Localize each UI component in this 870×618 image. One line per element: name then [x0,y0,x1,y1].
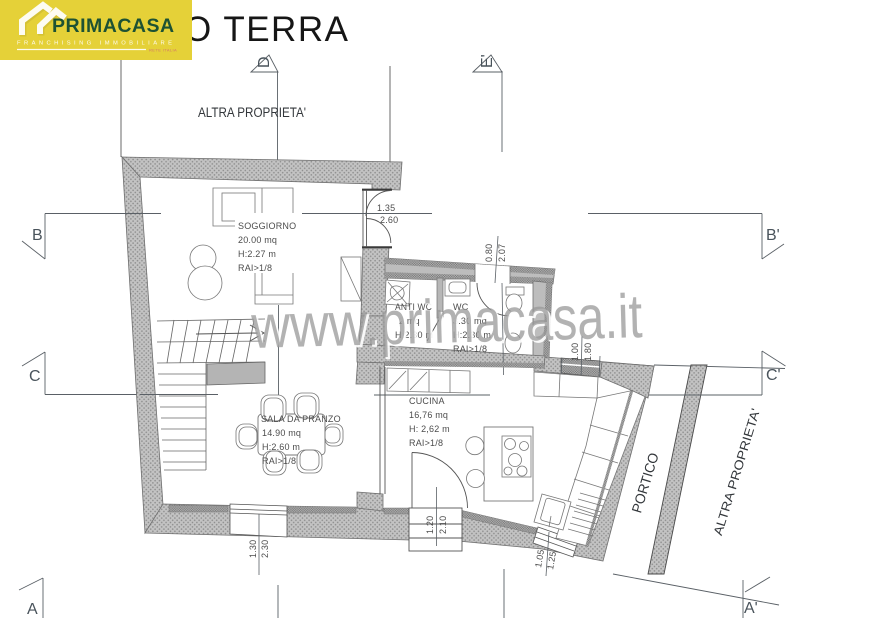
svg-text:H:2.27 m: H:2.27 m [238,249,276,259]
svg-text:SOGGIORNO: SOGGIORNO [238,221,296,231]
svg-text:C: C [29,368,41,385]
svg-text:RAI>1/8: RAI>1/8 [238,263,272,273]
svg-text:RETE ITALIA: RETE ITALIA [149,48,177,53]
svg-text:1.35: 1.35 [377,203,395,213]
svg-text:0.80: 0.80 [484,244,494,262]
svg-text:SALA DA PRANZO: SALA DA PRANZO [261,414,341,424]
svg-text:www.: www. [250,289,381,362]
svg-text:O TERRA: O TERRA [184,10,349,49]
svg-text:FRANCHISING IMMOBILIARE: FRANCHISING IMMOBILIARE [17,41,172,47]
svg-text:B': B' [766,227,780,244]
svg-text:2.07: 2.07 [497,244,507,262]
svg-text:2.10: 2.10 [438,516,448,534]
svg-text:primacasa.it: primacasa.it [378,282,643,358]
svg-text:C': C' [766,367,781,384]
svg-text:H:2.60 m: H:2.60 m [262,442,300,452]
svg-text:RAI>1/8: RAI>1/8 [262,456,296,466]
svg-text:1.20: 1.20 [425,516,435,534]
svg-text:2.30: 2.30 [260,540,270,558]
svg-text:A: A [27,601,38,618]
svg-text:PRIMACASA: PRIMACASA [52,15,175,37]
svg-text:H: 2,62 m: H: 2,62 m [409,424,450,434]
svg-text:2.60: 2.60 [380,215,398,225]
svg-text:ALTRA PROPRIETA': ALTRA PROPRIETA' [198,104,306,120]
svg-text:CUCINA: CUCINA [409,396,445,406]
svg-text:20.00 mq: 20.00 mq [238,235,277,245]
svg-text:1.30: 1.30 [248,540,258,558]
svg-text:16,76 mq: 16,76 mq [409,410,448,420]
svg-text:E': E' [479,54,496,68]
svg-text:A': A' [744,600,758,617]
svg-text:RAI>1/8: RAI>1/8 [409,438,443,448]
svg-text:B: B [32,227,43,244]
svg-text:14.90 mq: 14.90 mq [262,428,301,438]
svg-text:D: D [256,56,273,68]
